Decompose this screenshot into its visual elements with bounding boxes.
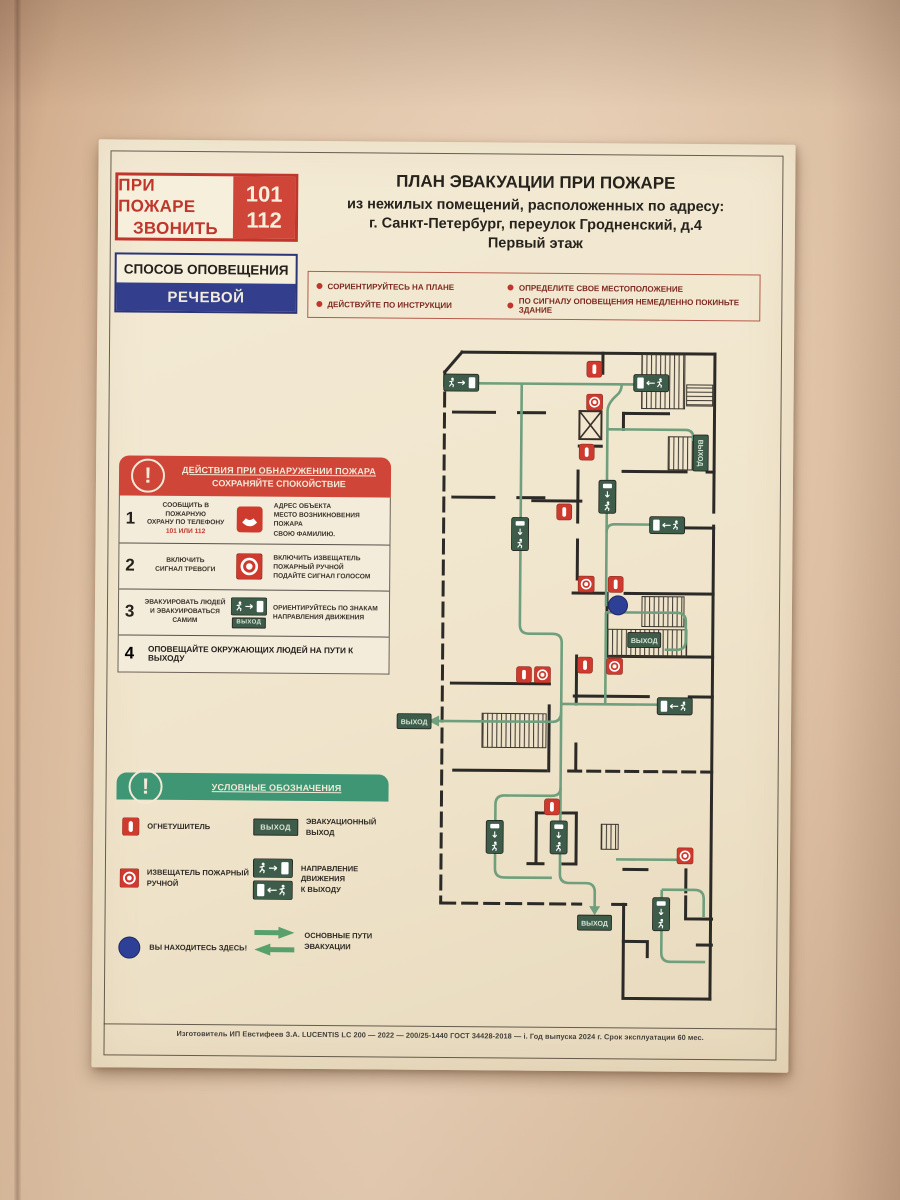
direction-sign-right-icon <box>253 859 293 878</box>
action-step-1: 1 СООБЩИТЬ В ПОЖАРНУЮ ОХРАНУ ПО ТЕЛЕФОНУ… <box>119 495 389 545</box>
direction-sign-left-icon <box>253 881 293 900</box>
staircase <box>482 713 546 748</box>
instruction-item: СОРИЕНТИРУЙТЕСЬ НА ПЛАНЕ <box>316 281 507 292</box>
actions-title: ДЕЙСТВИЯ ПРИ ОБНАРУЖЕНИИ ПОЖАРА <box>175 465 383 477</box>
route-arrow-left-icon <box>252 943 296 957</box>
instruction-item: ДЕЙСТВУЙТЕ ПО ИНСТРУКЦИИ <box>316 299 507 310</box>
action-step-4: 4 ОПОВЕЩАЙТЕ ОКРУЖАЮЩИХ ЛЮДЕЙ НА ПУТИ К … <box>118 635 388 673</box>
manual-call-point-icon <box>236 554 262 580</box>
exit-sign <box>444 374 479 391</box>
action-step-2: 2 ВКЛЮЧИТЬ СИГНАЛ ТРЕВОГИ ВКЛЮЧИТЬ ИЗВЕЩ… <box>119 543 389 591</box>
you-are-here-dot <box>608 596 627 615</box>
manual-call-point-icon <box>578 576 594 592</box>
bullet-icon <box>316 301 322 307</box>
manual-call-point-icon <box>120 868 139 887</box>
exit-badge-icon: ВЫХОД <box>231 617 266 628</box>
exit-sign-icon <box>231 597 267 615</box>
exit-sign <box>650 517 685 534</box>
notification-method-label: СПОСОБ ОПОВЕЩЕНИЯ <box>117 254 296 283</box>
title-line-3: г. Санкт-Петербург, переулок Гродненский… <box>303 215 768 235</box>
exit-sign <box>511 518 528 551</box>
exit-label: ВЫХОД <box>401 719 428 726</box>
actions-header: ! ДЕЙСТВИЯ ПРИ ОБНАРУЖЕНИИ ПОЖАРА СОХРАН… <box>119 455 391 497</box>
exit-badge-icon: ВЫХОД <box>253 819 298 836</box>
exit-sign <box>657 698 692 715</box>
fire-extinguisher-icon <box>516 667 531 683</box>
fire-extinguisher-icon <box>577 657 592 673</box>
actions-subtitle: СОХРАНЯЙТЕ СПОКОЙСТВИЕ <box>175 478 383 490</box>
emergency-numbers: 101 112 <box>233 176 295 238</box>
phone-icon <box>237 507 263 533</box>
staircase <box>668 437 693 470</box>
legend-panel: ! УСЛОВНЫЕ ОБОЗНАЧЕНИЯ ОГНЕТУШИТЕЛЬ ИЗВЕ… <box>115 772 389 976</box>
exclamation-icon: ! <box>128 769 162 803</box>
fire-extinguisher-icon <box>122 817 139 835</box>
exit-label: ВЫХОД <box>631 638 658 645</box>
exit-label: ВЫХОД <box>696 440 703 467</box>
fire-extinguisher-icon <box>544 799 559 815</box>
exit-sign <box>550 821 567 854</box>
manual-call-point-icon <box>606 658 622 674</box>
elevator-shaft <box>579 411 601 439</box>
wall-shadow <box>830 0 900 1200</box>
fire-extinguisher-icon <box>579 444 594 460</box>
notification-method-value: РЕЧЕВОЙ <box>116 282 295 311</box>
route-arrow-right-icon <box>252 926 296 940</box>
bullet-icon <box>508 302 514 308</box>
legend-call-point: ИЗВЕЩАТЕЛЬ ПОЖАРНЫЙ РУЧНОЙ <box>120 867 249 889</box>
exclamation-icon: ! <box>131 459 165 493</box>
exit-label: ВЫХОД <box>581 921 608 928</box>
evacuation-plan-poster: ПРИ ПОЖАРЕ ЗВОНИТЬ 101 112 СПОСОБ ОПОВЕЩ… <box>91 139 795 1072</box>
plan-title: ПЛАН ЭВАКУАЦИИ ПРИ ПОЖАРЕ из нежилых пом… <box>303 171 769 257</box>
legend-evac-exit: ВЫХОД ЭВАКУАЦИОННЫЙ ВЫХОД <box>253 817 376 839</box>
instruction-item: ПО СИГНАЛУ ОПОВЕЩЕНИЯ НЕМЕДЛЕННО ПОКИНЬТ… <box>508 296 752 316</box>
exit-sign <box>486 820 503 853</box>
exit-sign <box>652 898 669 931</box>
notification-method-box: СПОСОБ ОПОВЕЩЕНИЯ РЕЧЕВОЙ <box>114 252 297 313</box>
fire-actions-panel: ! ДЕЙСТВИЯ ПРИ ОБНАРУЖЕНИИ ПОЖАРА СОХРАН… <box>117 455 391 674</box>
fire-extinguisher-icon <box>608 576 623 592</box>
manual-call-point-icon <box>587 394 603 410</box>
route-arrow-down <box>589 906 600 915</box>
exit-sign <box>599 480 616 513</box>
instructions-strip: СОРИЕНТИРУЙТЕСЬ НА ПЛАНЕ ОПРЕДЕЛИТЕ СВОЕ… <box>307 271 760 322</box>
legend-title: УСЛОВНЫЕ ОБОЗНАЧЕНИЯ <box>173 782 381 794</box>
title-line-1: ПЛАН ЭВАКУАЦИИ ПРИ ПОЖАРЕ <box>303 171 768 195</box>
legend-header: ! УСЛОВНЫЕ ОБОЗНАЧЕНИЯ <box>116 772 388 801</box>
stairs <box>481 353 713 850</box>
instruction-item: ОПРЕДЕЛИТЕ СВОЕ МЕСТОПОЛОЖЕНИЕ <box>508 283 752 294</box>
bullet-icon <box>316 283 322 289</box>
fire-extinguisher-icon <box>557 504 572 520</box>
fire-extinguisher-icon <box>587 361 602 377</box>
exit-sign <box>634 374 669 391</box>
manual-call-point-icon <box>677 848 693 864</box>
emergency-call-box: ПРИ ПОЖАРЕ ЗВОНИТЬ 101 112 <box>115 172 299 241</box>
floor-plan: ВЫХОД ВЫХОД ВЫХОД ВЫХОД <box>394 343 739 1016</box>
legend-direction: НАПРАВЛЕНИЕ ДВИЖЕНИЯ К ВЫХОДУ <box>253 859 359 901</box>
legend-extinguisher: ОГНЕТУШИТЕЛЬ <box>122 817 210 836</box>
staircase <box>687 385 713 406</box>
wall-seam <box>14 0 21 1200</box>
legend-you-are-here: ВЫ НАХОДИТЕСЬ ЗДЕСЬ! <box>117 935 247 960</box>
emergency-call-text: ПРИ ПОЖАРЕ ЗВОНИТЬ <box>118 175 233 238</box>
you-are-here-icon <box>117 935 141 959</box>
legend-main-routes: ОСНОВНЫЕ ПУТИ ЭВАКУАЦИИ <box>252 926 372 958</box>
title-line-4: Первый этаж <box>303 234 768 254</box>
staircase <box>601 824 618 849</box>
manufacturer-line: Изготовитель ИП Евстифеев З.А. LUCENTIS … <box>92 1028 789 1042</box>
title-line-2: из нежилых помещений, расположенных по а… <box>303 196 768 216</box>
action-step-3: 3 ЭВАКУИРОВАТЬ ЛЮДЕЙ И ЭВАКУИРОВАТЬСЯ СА… <box>119 589 389 637</box>
bullet-icon <box>508 284 514 290</box>
manual-call-point-icon <box>534 667 550 683</box>
